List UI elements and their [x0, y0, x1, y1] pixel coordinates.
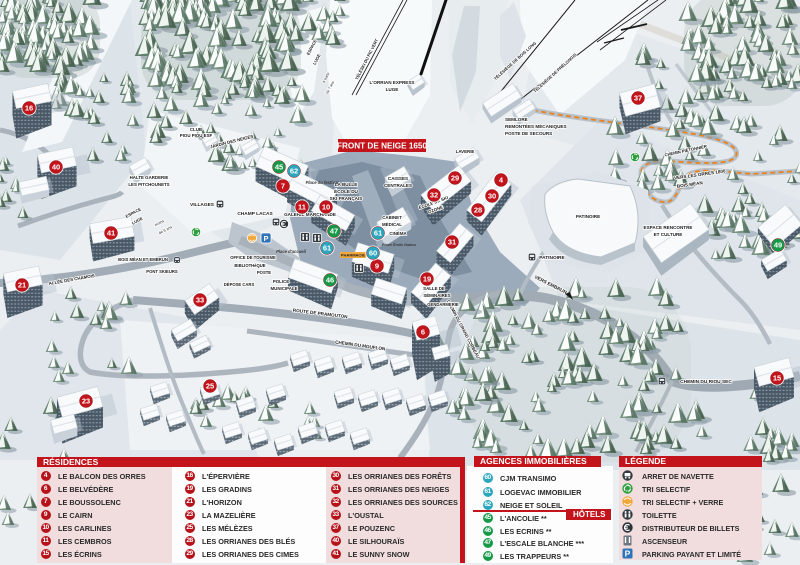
svg-text:SKI FRANÇAIS: SKI FRANÇAIS	[330, 196, 363, 201]
svg-text:SÉMINAIRES: SÉMINAIRES	[423, 293, 450, 298]
svg-text:40: 40	[52, 163, 60, 172]
svg-text:60: 60	[369, 249, 377, 258]
svg-text:ET CULTURE: ET CULTURE	[654, 232, 683, 237]
svg-text:CENTRALES: CENTRALES	[384, 183, 412, 188]
svg-text:POLICE: POLICE	[273, 279, 289, 284]
svg-text:HALTE GARDERIE: HALTE GARDERIE	[130, 175, 169, 180]
svg-text:CINÉMA: CINÉMA	[389, 231, 407, 236]
svg-text:19: 19	[423, 275, 431, 284]
svg-text:45: 45	[275, 163, 283, 172]
svg-text:29: 29	[451, 174, 459, 183]
svg-text:47: 47	[330, 227, 338, 236]
svg-text:16: 16	[25, 104, 33, 113]
svg-text:7: 7	[281, 182, 285, 191]
svg-text:REMONTÉES MÉCANIQUES: REMONTÉES MÉCANIQUES	[505, 122, 567, 129]
svg-text:P: P	[625, 549, 631, 559]
svg-text:41: 41	[107, 229, 115, 238]
svg-text:VILLAGES: VILLAGES	[190, 202, 215, 208]
svg-text:POSTE DE SECOURS: POSTE DE SECOURS	[505, 131, 552, 136]
svg-text:PONT SKIEURS: PONT SKIEURS	[146, 269, 178, 274]
svg-text:62: 62	[290, 167, 298, 176]
svg-text:PATINOIRE: PATINOIRE	[539, 255, 565, 261]
svg-text:L'ORRIAN EXPRESS: L'ORRIAN EXPRESS	[370, 80, 415, 85]
svg-text:33: 33	[196, 296, 204, 305]
svg-text:9: 9	[375, 262, 379, 271]
svg-text:LAVERIE: LAVERIE	[456, 149, 475, 154]
svg-text:CLUB: CLUB	[190, 127, 202, 132]
svg-text:OFFICE DE TOURISME: OFFICE DE TOURISME	[230, 255, 276, 260]
svg-text:6: 6	[421, 328, 425, 337]
svg-text:SEMLORE: SEMLORE	[505, 117, 528, 122]
svg-text:PHARMACIE: PHARMACIE	[341, 253, 366, 258]
svg-text:10: 10	[322, 203, 330, 212]
svg-text:LES PITCHOUNETS: LES PITCHOUNETS	[128, 182, 169, 187]
svg-text:Place du festival: Place du festival	[306, 180, 340, 185]
svg-text:BOIS MÉAN ET EMBRUN: BOIS MÉAN ET EMBRUN	[118, 257, 168, 262]
svg-text:CAISSES: CAISSES	[388, 176, 408, 181]
svg-text:MUNICIPALE: MUNICIPALE	[271, 286, 298, 291]
svg-text:Place Émile Nadou: Place Émile Nadou	[382, 242, 417, 247]
svg-text:32: 32	[430, 191, 438, 200]
svg-text:PIOU PIOU ESF: PIOU PIOU ESF	[180, 133, 213, 138]
svg-text:49: 49	[774, 241, 782, 250]
svg-text:ESPACE RENCONTRE: ESPACE RENCONTRE	[644, 225, 693, 230]
svg-text:15: 15	[773, 374, 781, 383]
svg-text:POSTE: POSTE	[257, 270, 271, 275]
svg-text:MÉDICAL: MÉDICAL	[382, 222, 402, 227]
svg-text:61: 61	[374, 229, 382, 238]
svg-text:BIBLIOTHèQUE: BIBLIOTHèQUE	[234, 263, 265, 268]
svg-text:P: P	[263, 234, 268, 243]
svg-text:28: 28	[474, 206, 482, 215]
svg-text:25: 25	[206, 382, 214, 391]
svg-text:ÉCOLE DU: ÉCOLE DU	[334, 187, 358, 194]
svg-text:61: 61	[323, 244, 331, 253]
svg-text:FRONT DE NEIGE 1650: FRONT DE NEIGE 1650	[337, 142, 428, 151]
svg-text:SALLE DE: SALLE DE	[423, 286, 445, 291]
svg-text:11: 11	[298, 203, 306, 212]
svg-text:31: 31	[448, 238, 456, 247]
svg-text:23: 23	[82, 397, 90, 406]
svg-text:46: 46	[326, 276, 334, 285]
svg-text:37: 37	[634, 94, 642, 103]
svg-text:Place d'accueil: Place d'accueil	[276, 249, 307, 254]
svg-text:CABINET: CABINET	[382, 215, 402, 220]
svg-text:GENDARMERIE: GENDARMERIE	[427, 302, 459, 307]
svg-text:30: 30	[488, 192, 496, 201]
svg-text:DÉPOSE CARS: DÉPOSE CARS	[224, 282, 255, 287]
svg-text:PATINOIRE: PATINOIRE	[576, 214, 600, 219]
svg-text:CHEMIN DU RIOU SEC: CHEMIN DU RIOU SEC	[680, 379, 732, 385]
svg-text:CHAMP LACAS: CHAMP LACAS	[237, 211, 273, 217]
svg-text:LUGE: LUGE	[386, 87, 399, 92]
svg-text:21: 21	[18, 281, 26, 290]
